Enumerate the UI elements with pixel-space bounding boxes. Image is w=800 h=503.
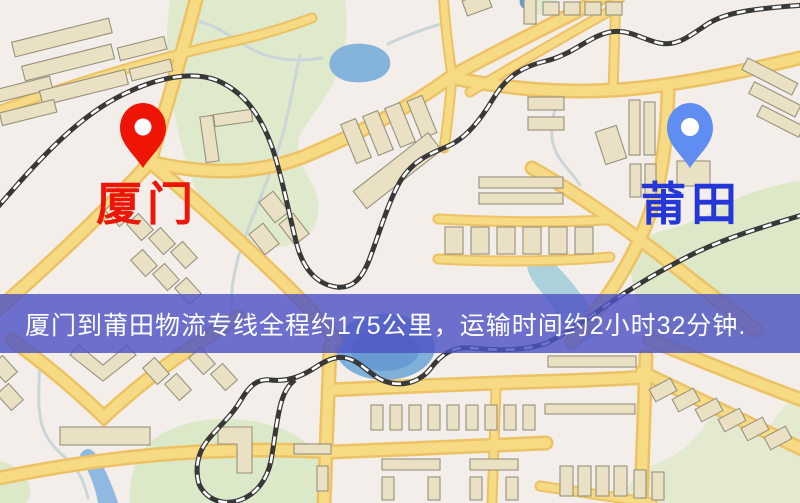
xiamen-pin-hole [135,119,152,136]
putian-pin-hole [681,118,699,136]
route-info-banner: 厦门到莆田物流专线全程约175公里，运输时间约2小时32分钟. [0,294,800,353]
route-info-text: 厦门到莆田物流专线全程约175公里，运输时间约2小时32分钟. [25,306,746,342]
map-screenshot: 厦门 莆田 厦门到莆田物流专线全程约175公里，运输时间约2小时32分钟. [0,0,800,503]
xiamen-label: 厦门 [96,178,198,230]
putian-label: 莆田 [640,178,742,230]
map-canvas[interactable]: 厦门 莆田 [0,0,800,503]
